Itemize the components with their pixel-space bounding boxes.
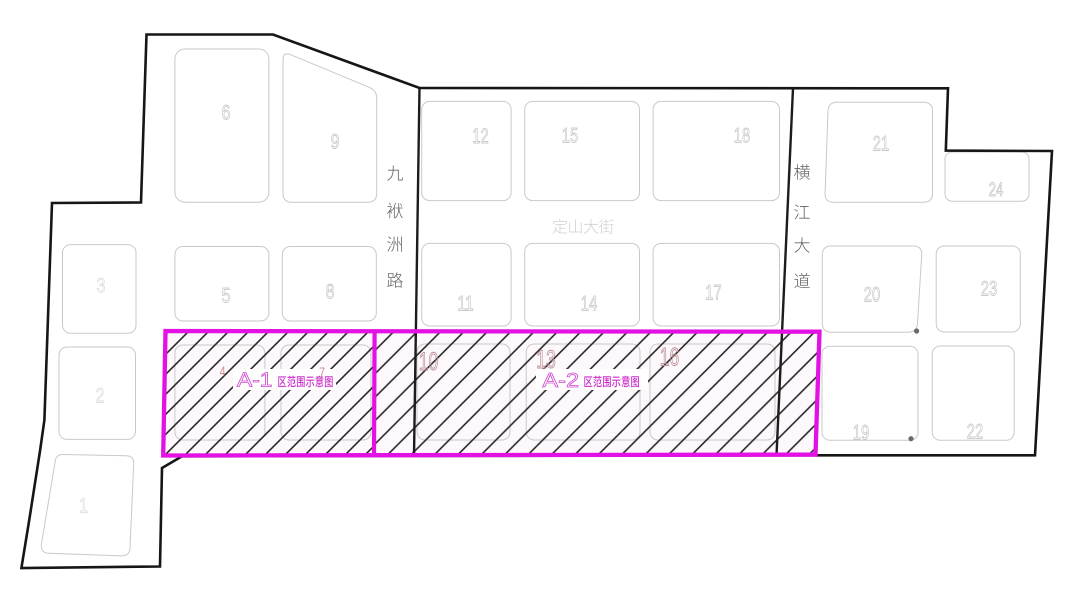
svg-text:3: 3 <box>97 275 106 298</box>
svg-text:16: 16 <box>660 344 680 372</box>
svg-text:23: 23 <box>981 278 997 301</box>
svg-text:24: 24 <box>989 180 1004 201</box>
svg-text:10: 10 <box>419 348 439 376</box>
svg-text:18: 18 <box>734 125 750 148</box>
svg-text:15: 15 <box>562 125 578 148</box>
svg-text:19: 19 <box>853 422 869 445</box>
svg-text:6: 6 <box>222 102 231 125</box>
svg-text:11: 11 <box>457 293 473 316</box>
svg-text:5: 5 <box>222 285 231 308</box>
svg-text:7: 7 <box>319 364 325 380</box>
svg-text:13: 13 <box>536 346 556 374</box>
svg-text:12: 12 <box>472 125 488 148</box>
svg-text:22: 22 <box>967 421 983 444</box>
svg-text:20: 20 <box>864 284 880 307</box>
svg-text:4: 4 <box>220 363 226 379</box>
svg-text:9: 9 <box>331 131 340 154</box>
svg-text:A-1: A-1 <box>237 369 273 392</box>
svg-text:17: 17 <box>705 282 721 305</box>
svg-text:1: 1 <box>79 495 88 518</box>
svg-text:2: 2 <box>96 385 105 408</box>
svg-text:14: 14 <box>581 293 598 316</box>
svg-text:8: 8 <box>326 281 335 304</box>
svg-text:21: 21 <box>873 133 889 156</box>
